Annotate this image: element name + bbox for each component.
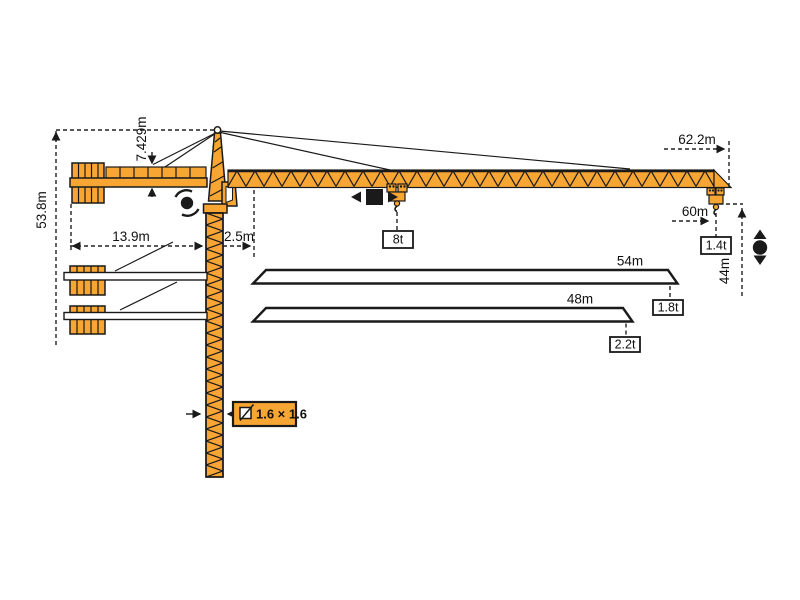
jib-variant-54m-length: 54m <box>617 254 643 269</box>
max-radius-dimension: 60m <box>672 204 708 221</box>
tie-rod <box>165 132 218 167</box>
main-jib <box>228 170 731 188</box>
leader-line <box>120 282 177 310</box>
min-radius-label: 2.5m <box>224 229 254 244</box>
tie-rod <box>219 132 391 170</box>
counterjib-radius-label: 13.9m <box>112 229 150 244</box>
jib-variant-48m-length: 48m <box>567 292 593 307</box>
mast <box>206 213 223 477</box>
crane-load-diagram: 53.8m 7.429m <box>0 0 800 600</box>
slewing-icon <box>176 190 199 215</box>
hoisting-icon <box>753 230 767 266</box>
jib-variant-48m: 48m 2.2t <box>253 292 640 353</box>
tip-capacity-badge: 1.4t <box>701 237 731 254</box>
counterjib-beam <box>70 178 207 187</box>
crane-load-diagram-page: 53.8m 7.429m <box>0 0 800 600</box>
hook <box>713 204 718 209</box>
max-load-label: 8t <box>393 233 404 247</box>
trolley-tip <box>707 188 724 215</box>
apex-pin <box>214 127 220 133</box>
total-height-label: 53.8m <box>34 191 49 229</box>
tie-rod <box>220 131 631 169</box>
counterweight-option-1 <box>64 242 207 295</box>
counterjib-radius-dimension: 13.9m <box>70 204 203 250</box>
hook <box>394 201 399 206</box>
hook-height-label: 44m <box>717 258 732 284</box>
tip-capacity-label: 1.4t <box>706 239 727 253</box>
jib-variant-54m: 54m 1.8t <box>253 254 683 316</box>
jib-variant-54m-capacity: 1.8t <box>658 301 679 315</box>
turntable <box>204 204 228 213</box>
max-radius-label: 60m <box>682 204 708 219</box>
max-load-badge: 8t <box>383 231 413 248</box>
mast-section-icon <box>240 405 254 421</box>
tie-rod <box>153 132 218 165</box>
apex-height-label: 7.429m <box>134 116 149 161</box>
cab-window <box>226 187 233 203</box>
jib-variant-48m-capacity: 2.2t <box>615 338 636 352</box>
counterjib-platform <box>106 167 206 178</box>
mast-section-callout: 1.6 × 1.6 <box>186 402 307 426</box>
jib-overall-label: 62.2m <box>678 132 716 147</box>
mast-section-label: 1.6 × 1.6 <box>256 407 307 422</box>
